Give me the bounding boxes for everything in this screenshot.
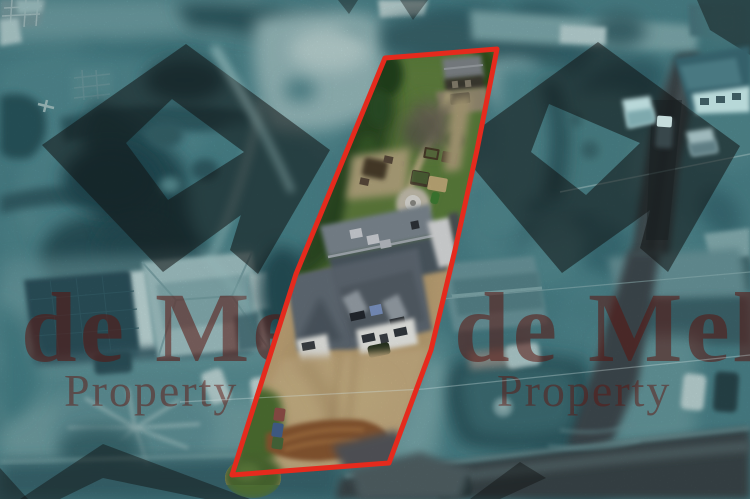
svg-text:Property: Property — [64, 365, 238, 416]
